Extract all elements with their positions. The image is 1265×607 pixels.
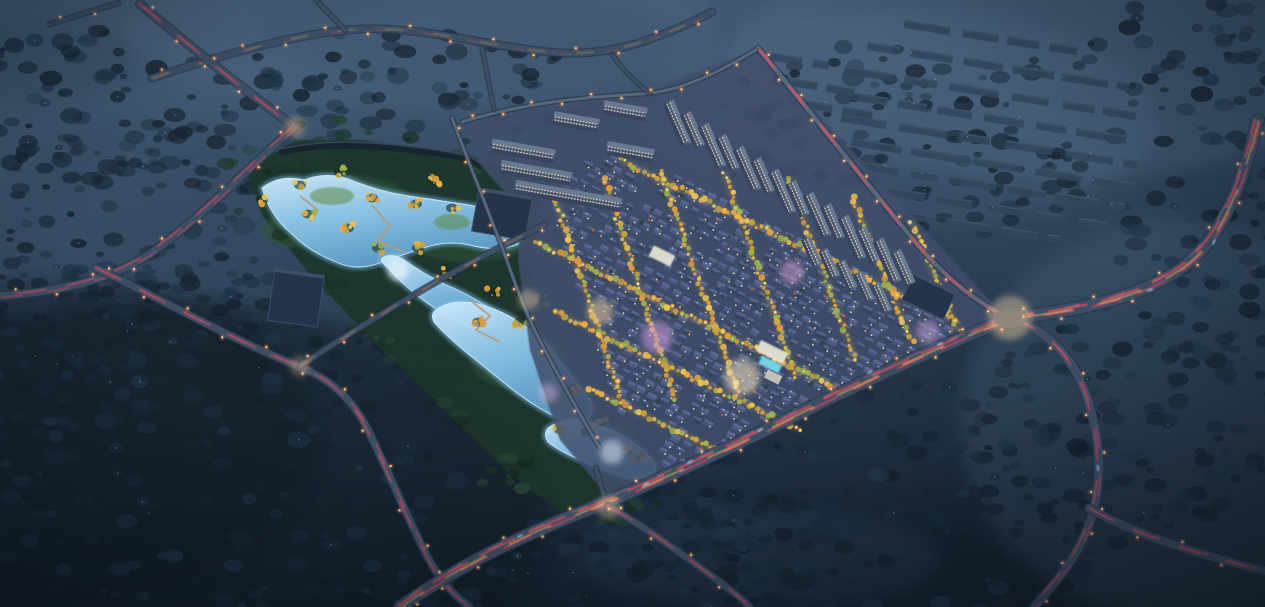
vignette-overlay [0, 0, 1265, 607]
vignette [0, 0, 1265, 607]
rendering-canvas [0, 0, 1265, 607]
aerial-night-rendering [0, 0, 1265, 607]
